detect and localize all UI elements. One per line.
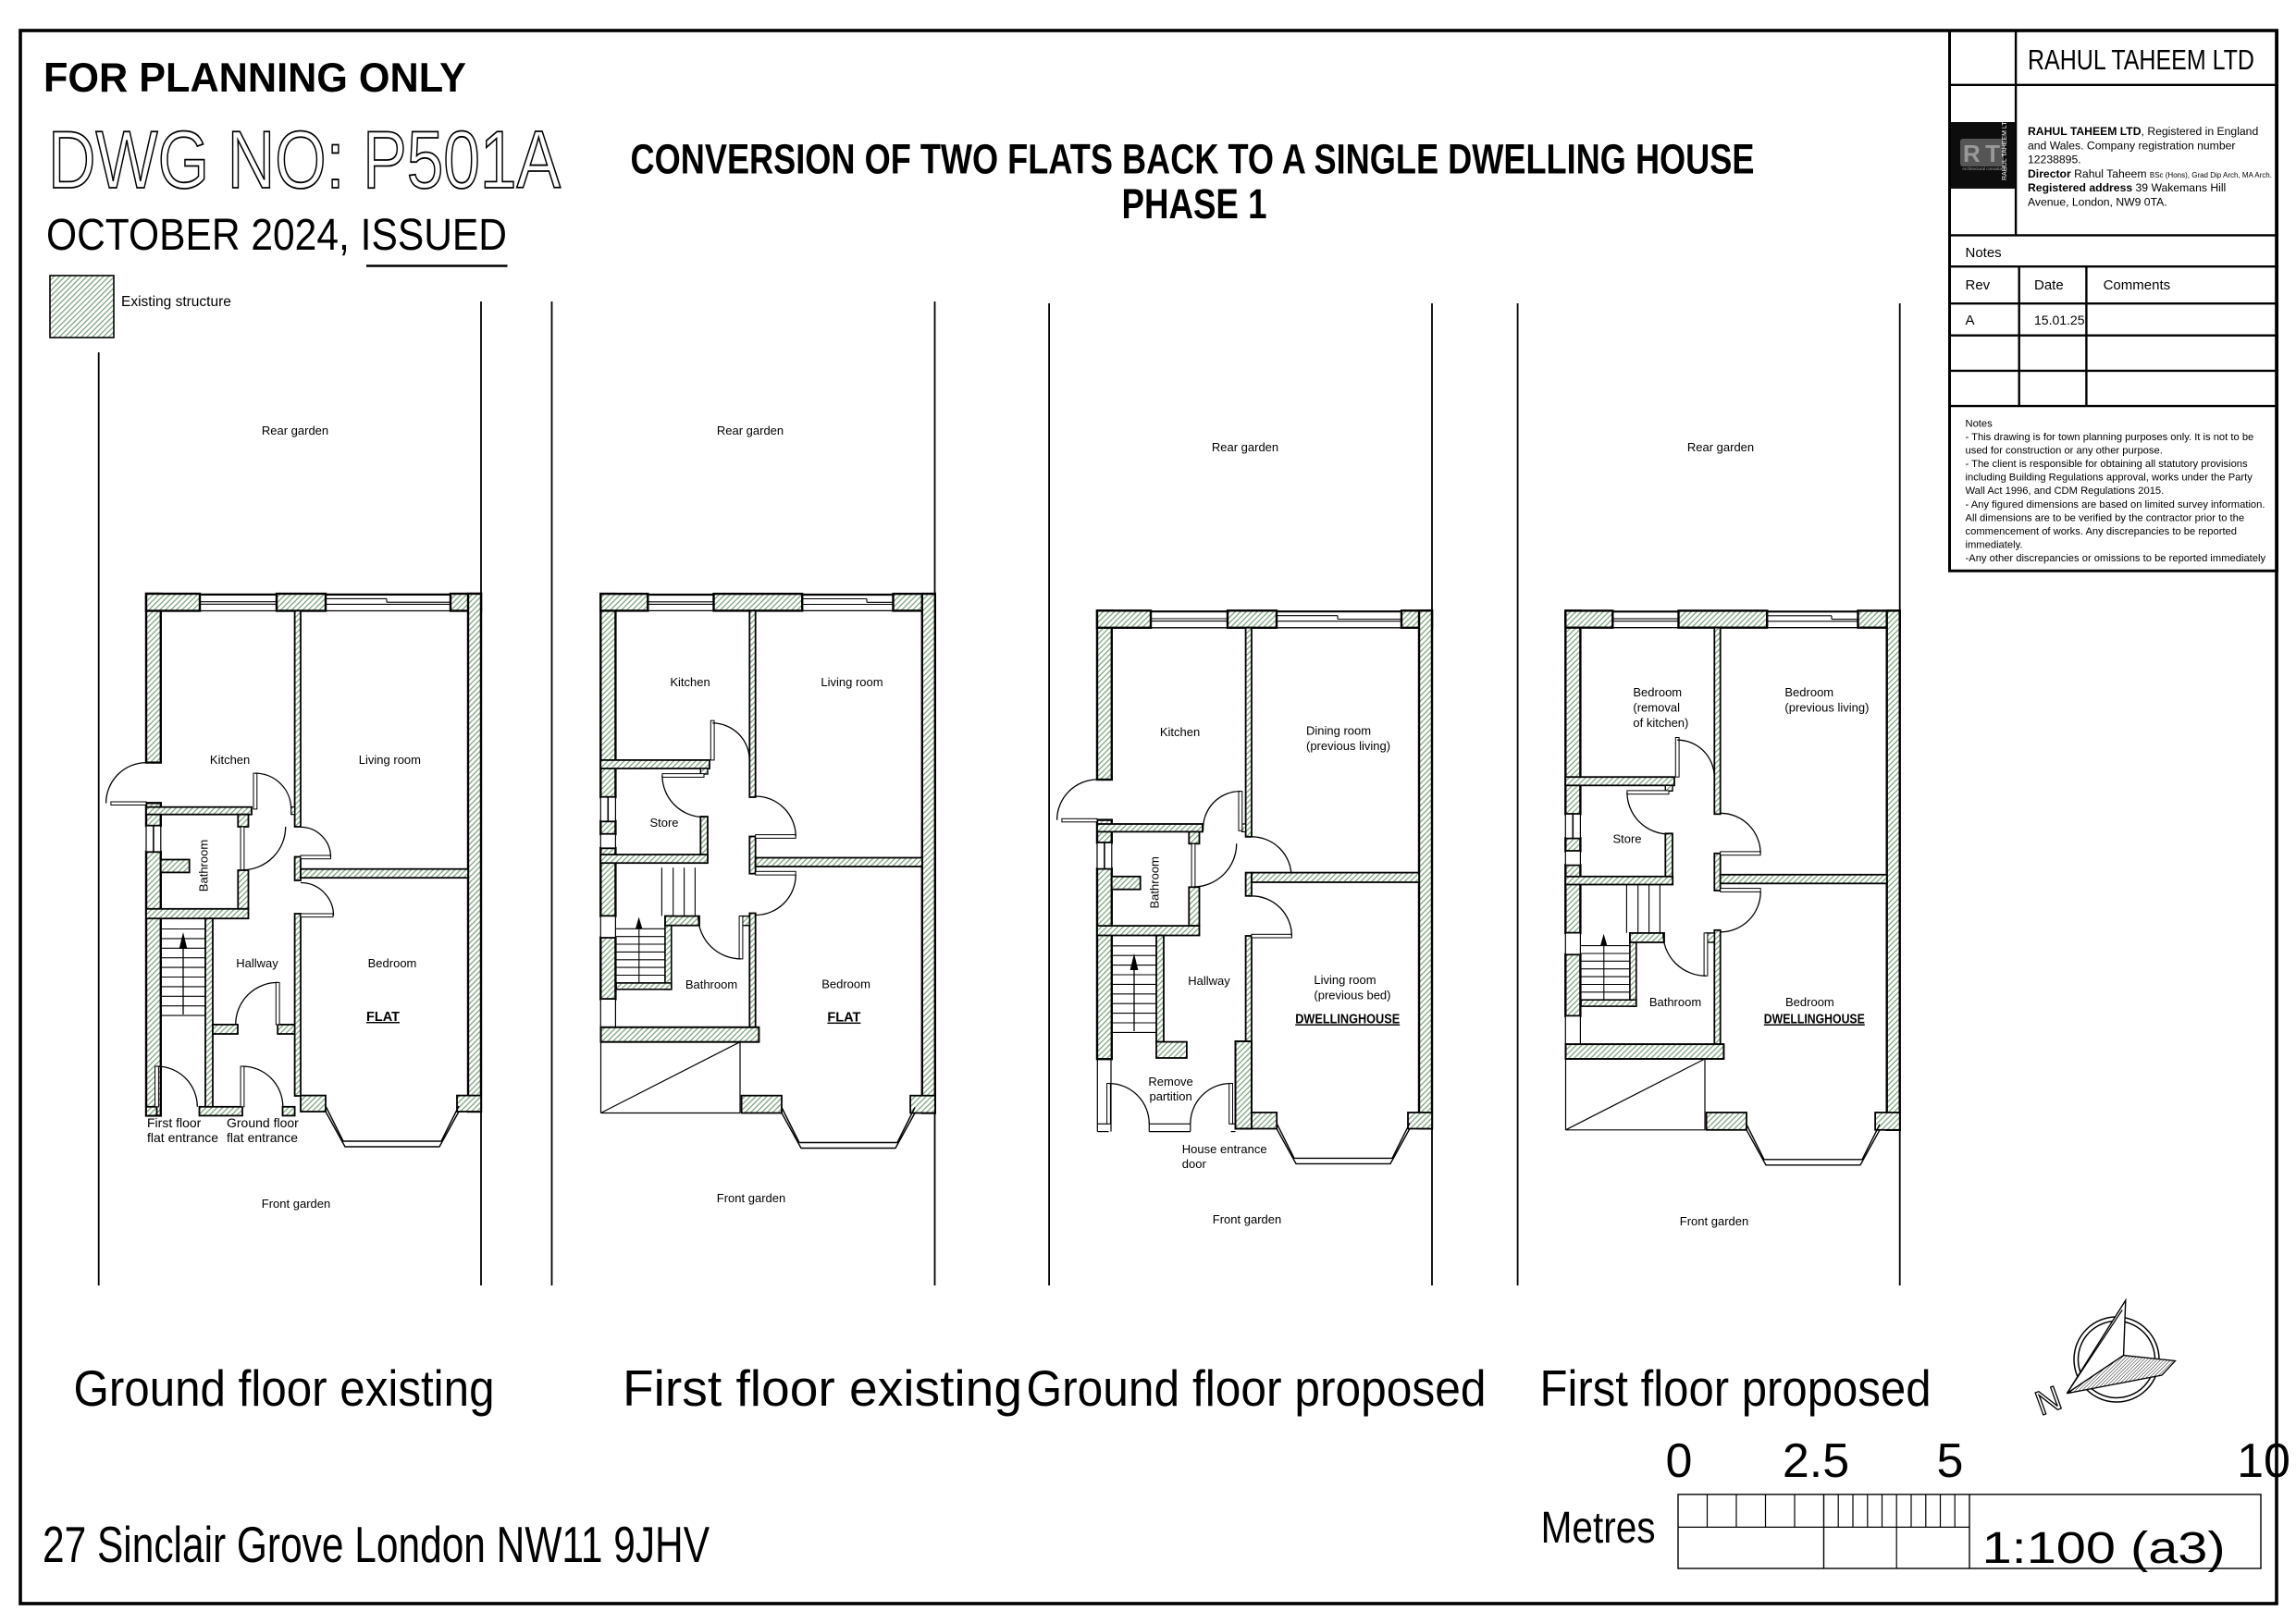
- svg-text:A: A: [1966, 313, 1975, 328]
- svg-text:Front garden: Front garden: [1680, 1214, 1748, 1228]
- svg-text:CONVERSION OF TWO FLATS BACK T: CONVERSION OF TWO FLATS BACK TO A SINGLE…: [631, 136, 1755, 183]
- svg-text:immediately.: immediately.: [1966, 539, 2023, 550]
- svg-text:Metres: Metres: [1541, 1504, 1656, 1553]
- svg-text:-Any other discrepancies or om: -Any other discrepancies or omissions to…: [1966, 553, 2266, 564]
- svg-text:Living room: Living room: [1314, 973, 1376, 987]
- svg-text:First floor proposed: First floor proposed: [1540, 1359, 1932, 1417]
- svg-text:Notes: Notes: [1966, 419, 1994, 430]
- svg-text:Remove: Remove: [1148, 1075, 1192, 1088]
- svg-text:2.5: 2.5: [1783, 1434, 1849, 1488]
- svg-text:Registered address 39 Wakemans: Registered address 39 Wakemans Hill: [2028, 181, 2226, 194]
- svg-text:5: 5: [1937, 1434, 1964, 1488]
- svg-text:Front garden: Front garden: [717, 1191, 785, 1205]
- svg-text:10: 10: [2237, 1434, 2290, 1488]
- svg-text:Wall Act 1996, and CDM Regulat: Wall Act 1996, and CDM Regulations 2015.: [1966, 486, 2165, 497]
- svg-text:Dining room: Dining room: [1306, 724, 1371, 738]
- svg-text:Rear garden: Rear garden: [1687, 440, 1754, 454]
- svg-text:RAHUL TAHEEM LTD: RAHUL TAHEEM LTD: [2002, 117, 2008, 180]
- svg-text:Ground floor: Ground floor: [227, 1115, 299, 1130]
- svg-text:Avenue, London, NW9 0TA.: Avenue, London, NW9 0TA.: [2028, 196, 2167, 209]
- svg-text:Hallway: Hallway: [236, 956, 278, 970]
- svg-text:1:100 (a3): 1:100 (a3): [1982, 1524, 2226, 1573]
- svg-text:Bathroom: Bathroom: [197, 840, 211, 891]
- svg-text:Store: Store: [1612, 832, 1641, 846]
- svg-text:Bedroom: Bedroom: [821, 977, 870, 990]
- svg-text:Living room: Living room: [821, 675, 883, 689]
- svg-text:- Any figured dimensions are b: - Any figured dimensions are based on li…: [1966, 499, 2265, 510]
- svg-text:PHASE 1: PHASE 1: [1122, 180, 1267, 227]
- svg-text:Bedroom: Bedroom: [1784, 685, 1833, 699]
- svg-text:FOR PLANNING ONLY: FOR PLANNING ONLY: [43, 55, 466, 101]
- svg-text:First floor existing: First floor existing: [623, 1359, 1022, 1417]
- svg-text:Bathroom: Bathroom: [1649, 995, 1701, 1009]
- svg-text:12238895.: 12238895.: [2028, 154, 2081, 166]
- svg-text:Rear garden: Rear garden: [1212, 440, 1278, 454]
- svg-text:Kitchen: Kitchen: [1160, 725, 1200, 739]
- svg-text:First floor: First floor: [147, 1115, 202, 1130]
- svg-text:Kitchen: Kitchen: [210, 753, 250, 767]
- svg-text:Bedroom: Bedroom: [1633, 685, 1682, 699]
- svg-text:used for construction or any o: used for construction or any other purpo…: [1966, 446, 2163, 457]
- svg-text:Kitchen: Kitchen: [670, 675, 710, 689]
- svg-text:Rear garden: Rear garden: [262, 424, 328, 437]
- svg-text:RAHUL TAHEEM LTD: RAHUL TAHEEM LTD: [2028, 44, 2254, 76]
- svg-text:Hallway: Hallway: [1188, 974, 1230, 988]
- svg-text:(previous bed): (previous bed): [1314, 989, 1390, 1002]
- svg-text:OCTOBER 2024, ISSUED: OCTOBER 2024, ISSUED: [46, 210, 507, 260]
- svg-text:FLAT: FLAT: [366, 1010, 400, 1025]
- svg-text:Comments: Comments: [2104, 277, 2171, 293]
- svg-text:FLAT: FLAT: [827, 1011, 860, 1026]
- svg-text:Bedroom: Bedroom: [368, 956, 417, 970]
- svg-text:Bedroom: Bedroom: [1785, 995, 1834, 1009]
- svg-text:Living room: Living room: [359, 753, 421, 767]
- svg-text:Front garden: Front garden: [262, 1197, 330, 1211]
- svg-text:Rear garden: Rear garden: [717, 424, 784, 437]
- svg-text:House entrance: House entrance: [1182, 1142, 1267, 1156]
- svg-text:Bathroom: Bathroom: [1148, 856, 1162, 908]
- svg-text:flat entrance: flat entrance: [227, 1130, 298, 1145]
- svg-text:partition: partition: [1149, 1089, 1191, 1103]
- svg-text:Ground floor existing: Ground floor existing: [74, 1359, 495, 1417]
- svg-text:DWELLINGHOUSE: DWELLINGHOUSE: [1295, 1013, 1400, 1027]
- svg-text:Bathroom: Bathroom: [685, 977, 737, 991]
- svg-text:- This drawing is for town pla: - This drawing is for town planning purp…: [1966, 432, 2254, 443]
- svg-text:Date: Date: [2034, 277, 2064, 293]
- svg-text:Ground floor proposed: Ground floor proposed: [1027, 1359, 1487, 1417]
- svg-text:15.01.25: 15.01.25: [2034, 313, 2085, 327]
- svg-text:Front garden: Front garden: [1213, 1212, 1281, 1226]
- svg-text:- The client is responsible fo: - The client is responsible for obtainin…: [1966, 459, 2249, 470]
- svg-text:Existing structure: Existing structure: [121, 294, 231, 310]
- svg-text:(previous living): (previous living): [1784, 701, 1869, 715]
- svg-text:0: 0: [1666, 1434, 1693, 1488]
- svg-text:DWELLINGHOUSE: DWELLINGHOUSE: [1764, 1013, 1865, 1027]
- svg-text:All dimensions are to be verif: All dimensions are to be verified by the…: [1966, 512, 2245, 523]
- svg-text:Store: Store: [649, 816, 678, 830]
- svg-text:RAHUL TAHEEM LTD, Registered i: RAHUL TAHEEM LTD, Registered in England: [2028, 125, 2258, 138]
- svg-text:commencement of works. Any dis: commencement of works. Any discrepancies…: [1966, 526, 2238, 537]
- svg-text:Notes: Notes: [1966, 245, 2002, 261]
- svg-text:of kitchen): of kitchen): [1633, 716, 1688, 730]
- svg-text:27 Sinclair Grove London NW11: 27 Sinclair Grove London NW11 9JHV: [43, 1516, 710, 1573]
- svg-text:door: door: [1182, 1157, 1207, 1171]
- svg-text:(previous living): (previous living): [1306, 739, 1390, 753]
- svg-text:DWG NO: P501A: DWG NO: P501A: [48, 114, 561, 205]
- svg-text:(removal: (removal: [1633, 701, 1680, 715]
- svg-text:including Building Regulations: including Building Regulations approval,…: [1966, 473, 2253, 484]
- svg-text:Rev: Rev: [1966, 277, 1991, 293]
- svg-text:flat entrance: flat entrance: [147, 1130, 218, 1145]
- svg-text:and Wales. Company registratio: and Wales. Company registration number: [2028, 139, 2235, 152]
